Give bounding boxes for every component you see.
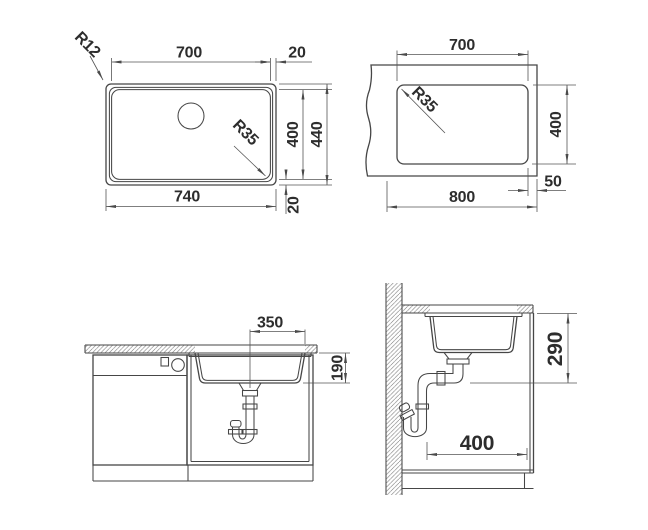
sink-top-plan-view: 700 20 400 440 740 20 R12 R35: [71, 29, 332, 214]
dim-overall-width: 740: [174, 189, 200, 206]
dim-edge-distance: 50: [544, 174, 562, 191]
drain-hole: [178, 103, 204, 129]
dim-edge-offset-top: 20: [288, 45, 306, 62]
left-cabinet: [93, 355, 187, 465]
side-drain-piping: [398, 353, 472, 437]
bowl-side-inner-wall: [433, 317, 514, 350]
worktop-hatch-front: [517, 305, 533, 313]
technical-drawing-page: 700 20 400 440 740 20 R12 R35 700: [0, 0, 648, 530]
worktop-hatch-left: [85, 345, 195, 353]
wall-hatch: [386, 283, 402, 495]
dim-worktop-width: 800: [449, 189, 475, 206]
dim-outer-corner-radius: R12: [71, 29, 104, 62]
dim-drain-outlet-height: 290: [544, 332, 567, 366]
dim-cutout-corner-radius: R35: [408, 84, 441, 117]
dim-edge-offset-bottom: 20: [286, 196, 303, 214]
dim-drain-center-offset: 350: [257, 315, 283, 332]
dim-bowl-depth: 400: [285, 121, 302, 147]
dim-overall-depth: 440: [309, 121, 326, 147]
sink-installation-drawing: 700 20 400 440 740 20 R12 R35 700: [0, 0, 648, 530]
cabinet-control-button: [161, 358, 169, 367]
dim-cutout-depth: 400: [548, 111, 565, 137]
cabinet-control-knob: [172, 359, 185, 372]
worktop-outline-torn-edge: [366, 65, 537, 176]
dim-cutout-width: 700: [449, 37, 475, 54]
dim-bowl-inner-depth: 190: [330, 355, 347, 381]
dim-bowl-corner-radius: R35: [229, 117, 262, 150]
worktop-cutout-plan-view: 700 R35 400 50 800: [366, 37, 576, 212]
drain-trap-assembly: [229, 383, 262, 444]
dim-cabinet-inner-depth: 400: [460, 432, 494, 455]
dim-bowl-width: 700: [176, 45, 202, 62]
worktop-hatch-back: [402, 305, 430, 313]
front-section-view: 350 190: [85, 315, 350, 482]
side-section-view: 290 400: [386, 283, 577, 495]
worktop-hatch-right: [305, 345, 317, 353]
bowl-side-outer-wall: [430, 317, 517, 353]
